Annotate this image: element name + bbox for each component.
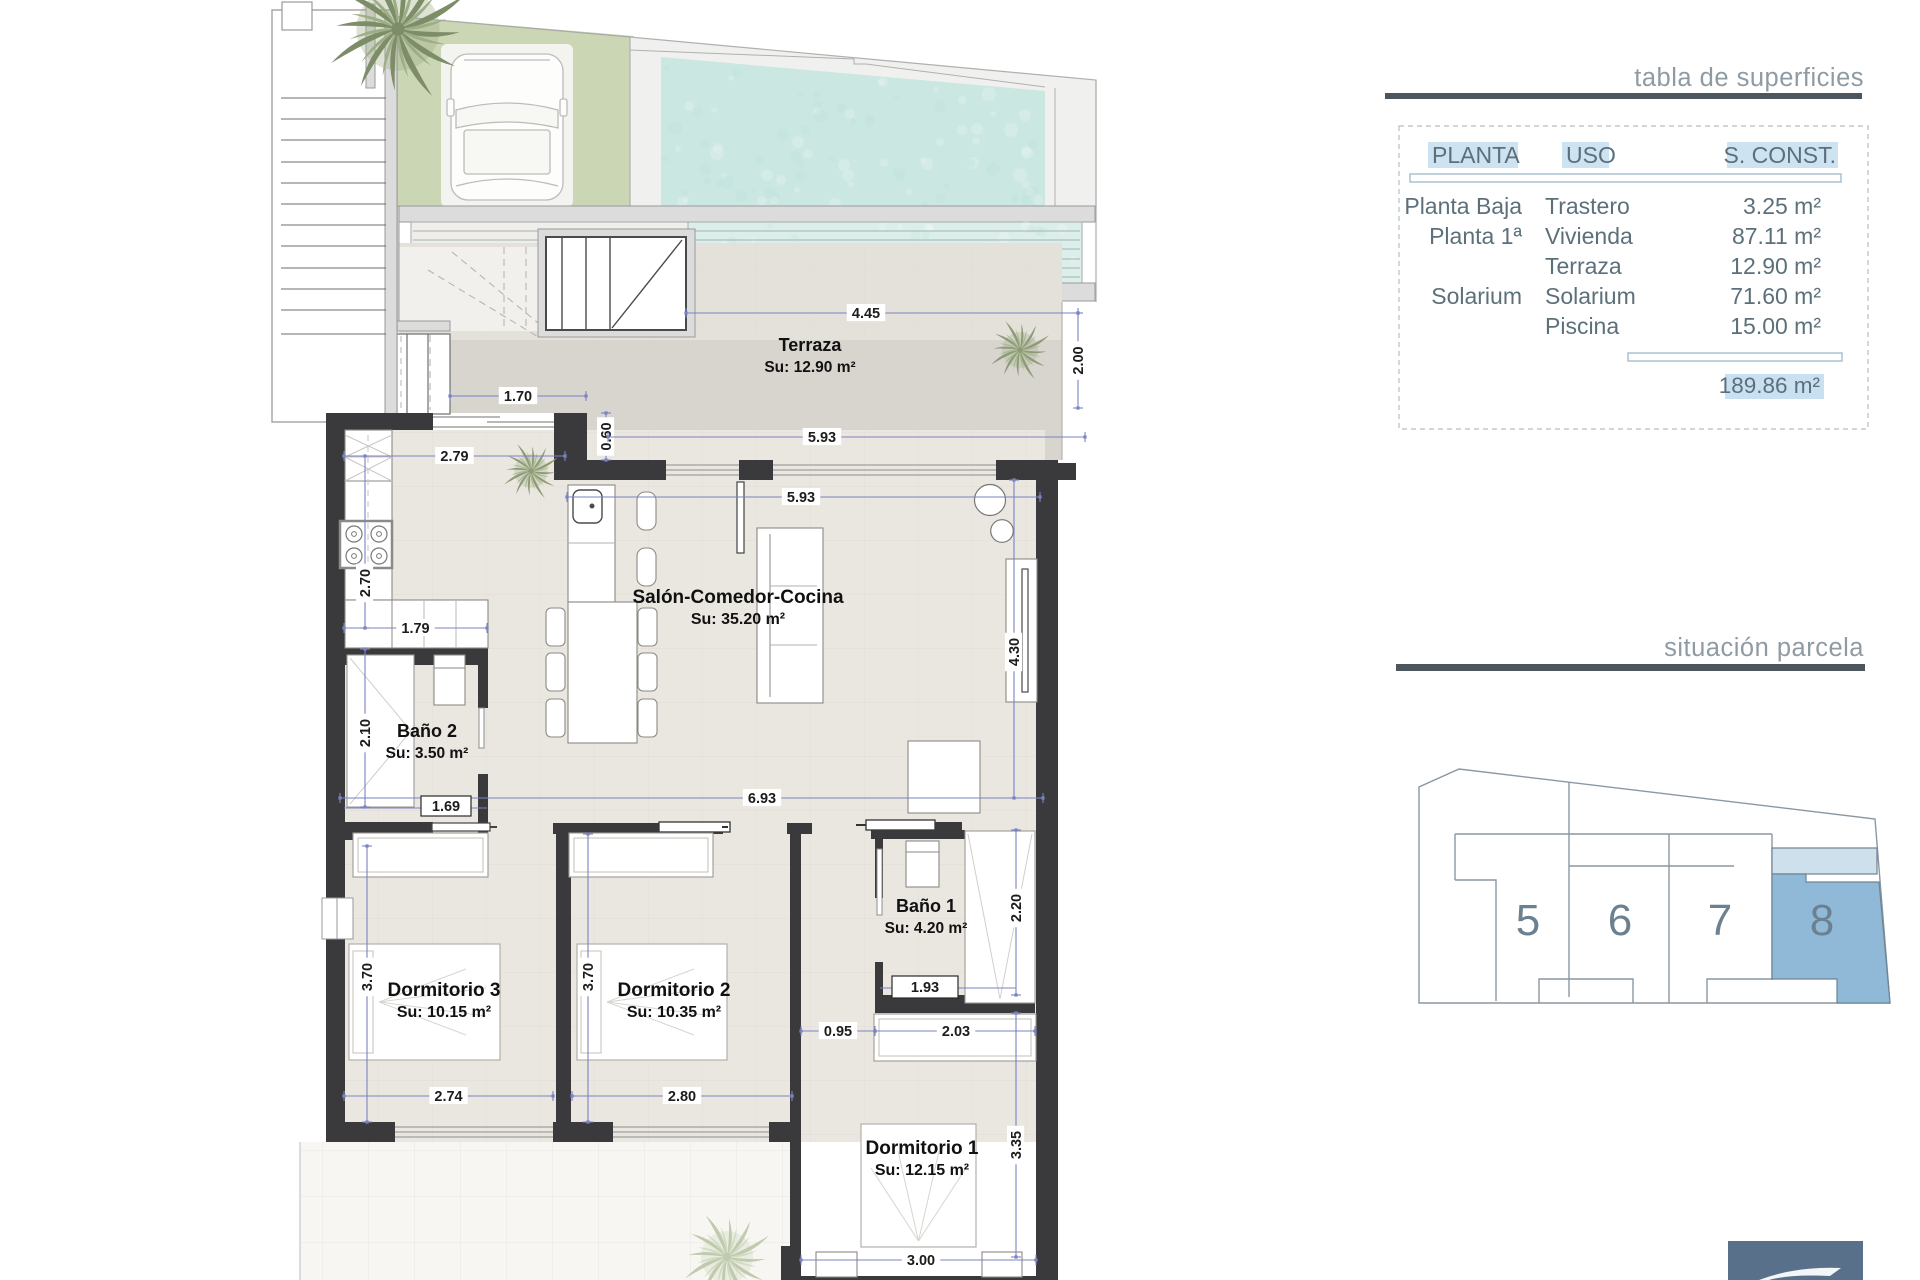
svg-text:Baño 1: Baño 1 bbox=[896, 896, 956, 916]
svg-text:2.00: 2.00 bbox=[1071, 346, 1087, 374]
svg-text:5: 5 bbox=[1516, 896, 1540, 945]
svg-text:71.60 m²: 71.60 m² bbox=[1730, 283, 1821, 309]
svg-text:Su: 4.20 m²: Su: 4.20 m² bbox=[885, 920, 968, 937]
svg-text:Su: 10.15 m²: Su: 10.15 m² bbox=[397, 1004, 491, 1021]
svg-text:Piscina: Piscina bbox=[1545, 313, 1619, 339]
svg-text:2.10: 2.10 bbox=[358, 719, 374, 747]
svg-text:Dormitorio 2: Dormitorio 2 bbox=[618, 980, 731, 1001]
svg-text:Terraza: Terraza bbox=[779, 335, 843, 355]
svg-text:Su: 12.90 m²: Su: 12.90 m² bbox=[764, 359, 855, 376]
svg-text:3.00: 3.00 bbox=[907, 1253, 935, 1269]
svg-text:Su: 12.15 m²: Su: 12.15 m² bbox=[875, 1162, 969, 1179]
svg-text:4.45: 4.45 bbox=[852, 306, 880, 322]
svg-text:3.70: 3.70 bbox=[581, 963, 597, 991]
svg-text:6: 6 bbox=[1608, 896, 1632, 945]
svg-text:1.69: 1.69 bbox=[432, 799, 460, 815]
svg-text:2.80: 2.80 bbox=[668, 1089, 696, 1105]
svg-text:2.79: 2.79 bbox=[440, 449, 468, 465]
svg-text:1.93: 1.93 bbox=[911, 980, 939, 996]
svg-text:8: 8 bbox=[1810, 896, 1834, 945]
svg-text:5.93: 5.93 bbox=[808, 430, 836, 446]
svg-text:Trastero: Trastero bbox=[1545, 193, 1630, 219]
svg-text:7: 7 bbox=[1708, 896, 1732, 945]
svg-text:1.70: 1.70 bbox=[504, 389, 532, 405]
svg-text:Solarium: Solarium bbox=[1431, 283, 1522, 309]
svg-text:15.00 m²: 15.00 m² bbox=[1730, 313, 1821, 339]
svg-text:Planta 1ª: Planta 1ª bbox=[1429, 223, 1522, 249]
svg-text:5.93: 5.93 bbox=[787, 490, 815, 506]
svg-text:Su: 35.20 m²: Su: 35.20 m² bbox=[691, 611, 785, 628]
svg-text:2.74: 2.74 bbox=[434, 1089, 462, 1105]
svg-text:2.70: 2.70 bbox=[358, 569, 374, 597]
svg-text:Salón-Comedor-Cocina: Salón-Comedor-Cocina bbox=[632, 587, 844, 608]
svg-text:0.95: 0.95 bbox=[824, 1024, 852, 1040]
svg-text:Planta Baja: Planta Baja bbox=[1404, 193, 1522, 219]
svg-text:3.70: 3.70 bbox=[360, 963, 376, 991]
svg-text:4.30: 4.30 bbox=[1007, 638, 1023, 666]
svg-text:Dormitorio 3: Dormitorio 3 bbox=[388, 980, 501, 1001]
svg-text:1.79: 1.79 bbox=[401, 621, 429, 637]
svg-text:tabla de superficies: tabla de superficies bbox=[1634, 64, 1864, 92]
svg-text:situación parcela: situación parcela bbox=[1664, 634, 1864, 662]
svg-text:87.11 m²: 87.11 m² bbox=[1732, 223, 1821, 249]
svg-text:USO: USO bbox=[1566, 142, 1616, 168]
svg-text:S. CONST.: S. CONST. bbox=[1724, 142, 1836, 168]
svg-text:Su: 10.35 m²: Su: 10.35 m² bbox=[627, 1004, 721, 1021]
svg-text:Dormitorio 1: Dormitorio 1 bbox=[866, 1138, 979, 1159]
svg-text:6.93: 6.93 bbox=[748, 791, 776, 807]
svg-text:Su: 3.50 m²: Su: 3.50 m² bbox=[386, 745, 469, 762]
svg-text:189.86 m²: 189.86 m² bbox=[1719, 373, 1821, 398]
svg-text:PLANTA: PLANTA bbox=[1432, 142, 1520, 168]
svg-text:Vivienda: Vivienda bbox=[1545, 223, 1633, 249]
svg-text:Terraza: Terraza bbox=[1545, 253, 1622, 279]
svg-text:Solarium: Solarium bbox=[1545, 283, 1636, 309]
svg-text:Baño 2: Baño 2 bbox=[397, 721, 457, 741]
svg-text:12.90 m²: 12.90 m² bbox=[1730, 253, 1821, 279]
svg-text:2.03: 2.03 bbox=[942, 1024, 970, 1040]
svg-text:3.25 m²: 3.25 m² bbox=[1743, 193, 1821, 219]
svg-text:3.35: 3.35 bbox=[1009, 1131, 1025, 1159]
svg-text:2.20: 2.20 bbox=[1009, 894, 1025, 922]
